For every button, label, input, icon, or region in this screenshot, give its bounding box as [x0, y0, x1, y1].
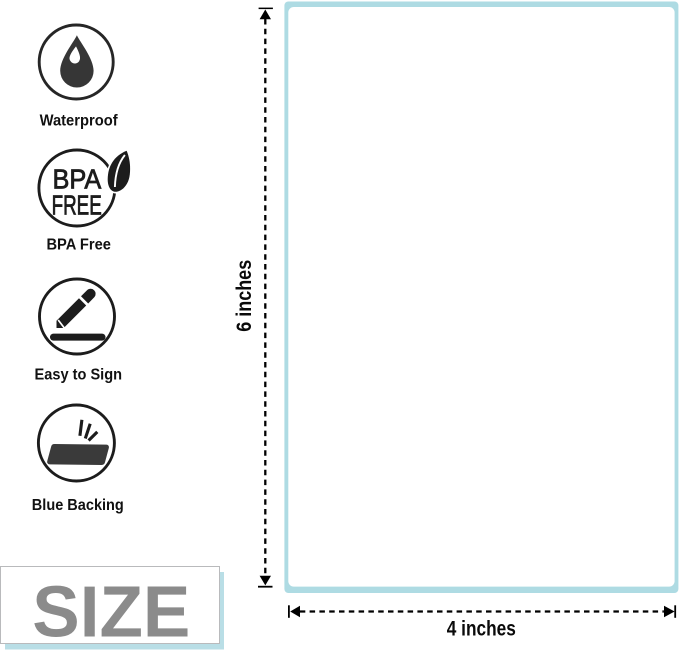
svg-text:BPA Free: BPA Free: [46, 236, 111, 253]
svg-text:Waterproof: Waterproof: [40, 113, 119, 130]
svg-text:FREE: FREE: [52, 190, 102, 221]
svg-text:Easy to Sign: Easy to Sign: [35, 366, 123, 383]
svg-text:6 inches: 6 inches: [233, 260, 256, 332]
svg-text:Blue Backing: Blue Backing: [32, 497, 124, 514]
svg-text:SIZE: SIZE: [32, 573, 190, 653]
svg-text:4 inches: 4 inches: [447, 618, 516, 641]
